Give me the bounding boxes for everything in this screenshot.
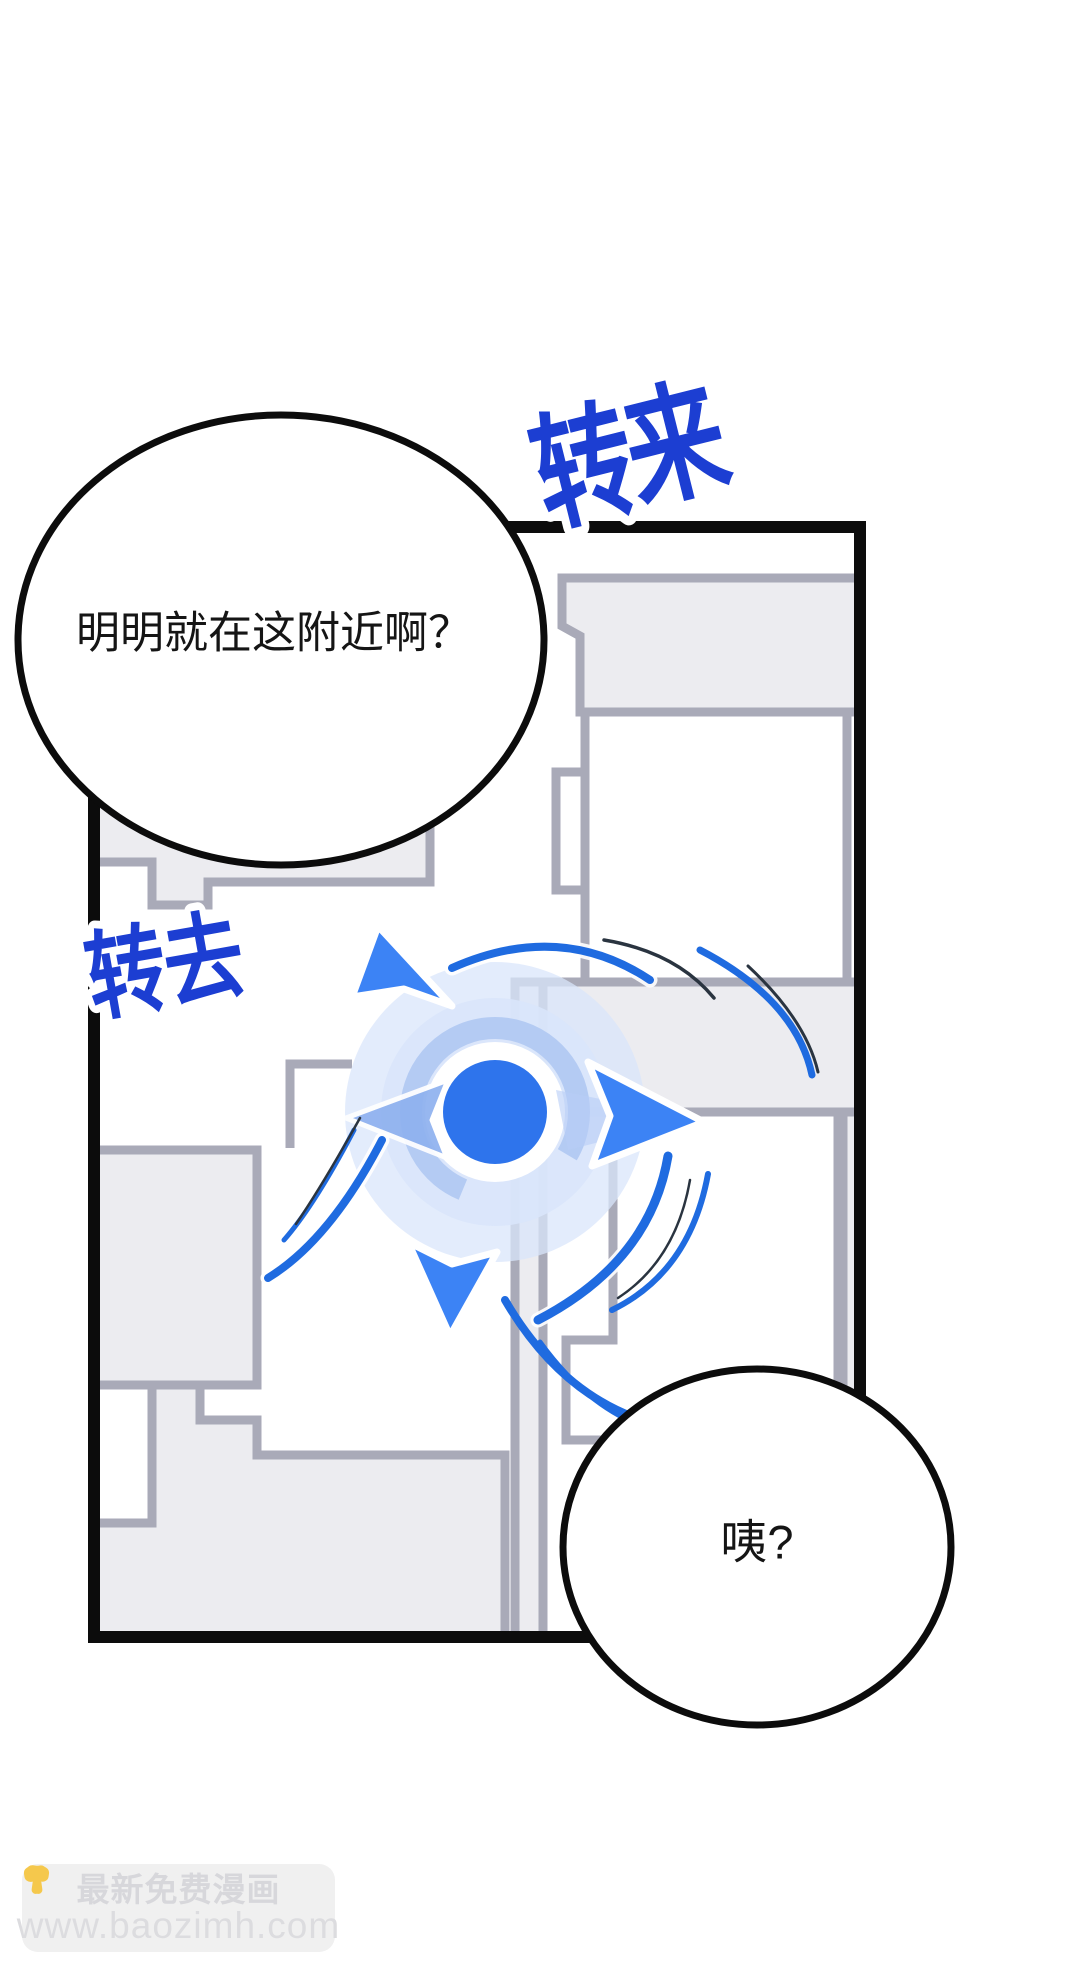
- speech-bubble-top-left: 明明就在这附近啊？: [18, 415, 544, 865]
- watermark-url: www.baozimh.com: [17, 1907, 340, 1944]
- block-right-upper: [585, 712, 847, 982]
- block-left-middle: [94, 1150, 257, 1385]
- watermark-title: 最新免费漫画: [77, 1873, 281, 1906]
- comic-art: 明明就在这附近啊？ 咦? 转来 转去: [0, 0, 1088, 1975]
- pointing-down-hand-icon: [22, 1864, 52, 1896]
- watermark-title-line: 最新免费漫画: [77, 1873, 281, 1906]
- comic-page: 明明就在这附近啊？ 咦? 转来 转去 最新免费漫画: [0, 0, 1088, 1975]
- block-right-upper-notch: [556, 772, 585, 890]
- speech-bubble-text: 咦?: [720, 1516, 793, 1569]
- marker-dot: [443, 1060, 547, 1164]
- speech-bubble-text: 明明就在这附近啊？: [76, 609, 472, 658]
- watermark: 最新免费漫画 www.baozimh.com: [22, 1864, 335, 1952]
- road-band-top-right: [562, 578, 860, 712]
- speech-bubble-bottom-right: 咦?: [563, 1369, 951, 1725]
